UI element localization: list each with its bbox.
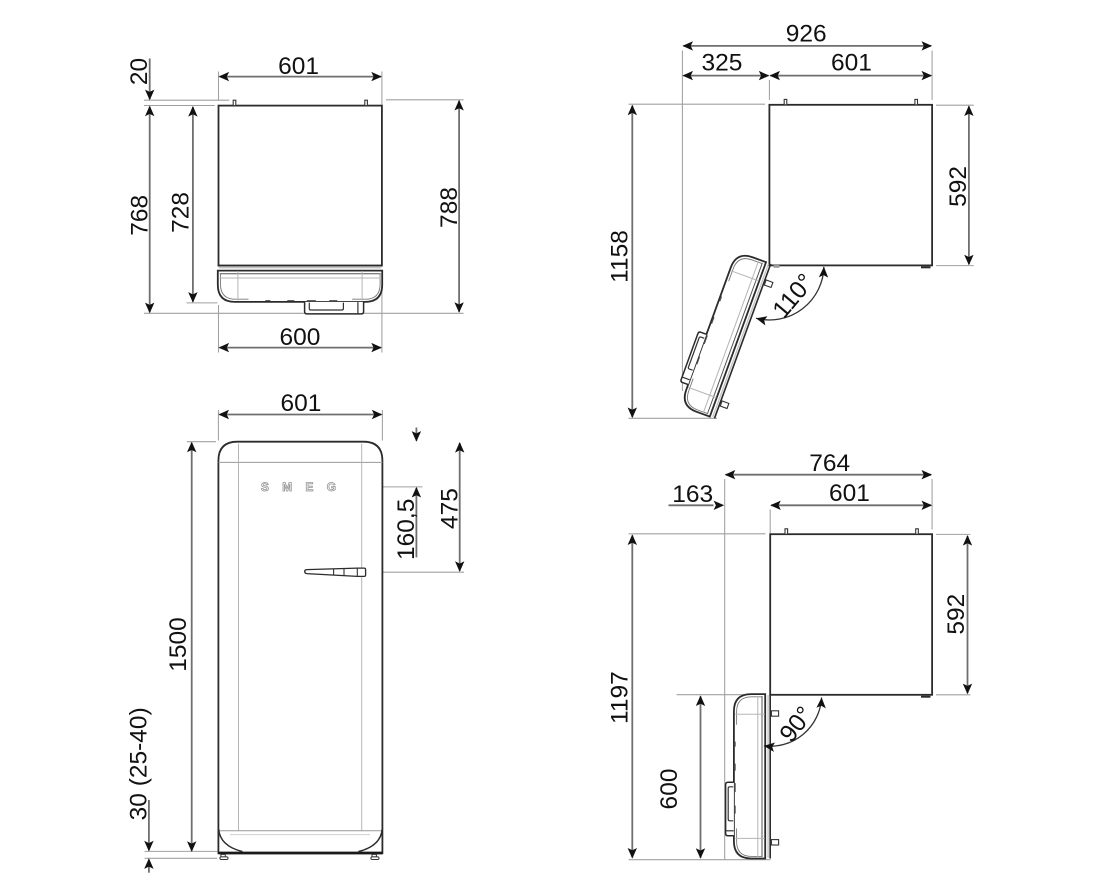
svg-text:475: 475: [437, 488, 464, 529]
svg-text:592: 592: [945, 166, 972, 207]
svg-text:325: 325: [702, 50, 743, 77]
svg-text:601: 601: [278, 53, 319, 80]
svg-text:728: 728: [168, 192, 195, 233]
svg-text:600: 600: [280, 324, 321, 351]
svg-text:SMEG: SMEG: [261, 480, 349, 494]
svg-text:600: 600: [656, 769, 683, 810]
svg-text:926: 926: [786, 21, 827, 48]
svg-text:1158: 1158: [607, 230, 634, 283]
svg-text:1197: 1197: [607, 671, 634, 724]
svg-text:764: 764: [809, 450, 850, 477]
svg-text:1500: 1500: [165, 617, 192, 672]
svg-text:601: 601: [281, 390, 322, 417]
svg-text:601: 601: [831, 50, 872, 77]
svg-text:601: 601: [829, 480, 870, 507]
svg-text:788: 788: [436, 187, 463, 228]
svg-text:20: 20: [126, 58, 153, 85]
svg-text:592: 592: [943, 594, 970, 635]
svg-text:30 (25-40): 30 (25-40): [125, 707, 152, 820]
svg-text:160,5: 160,5: [393, 499, 420, 560]
svg-text:768: 768: [127, 195, 154, 236]
svg-text:163: 163: [672, 481, 713, 508]
